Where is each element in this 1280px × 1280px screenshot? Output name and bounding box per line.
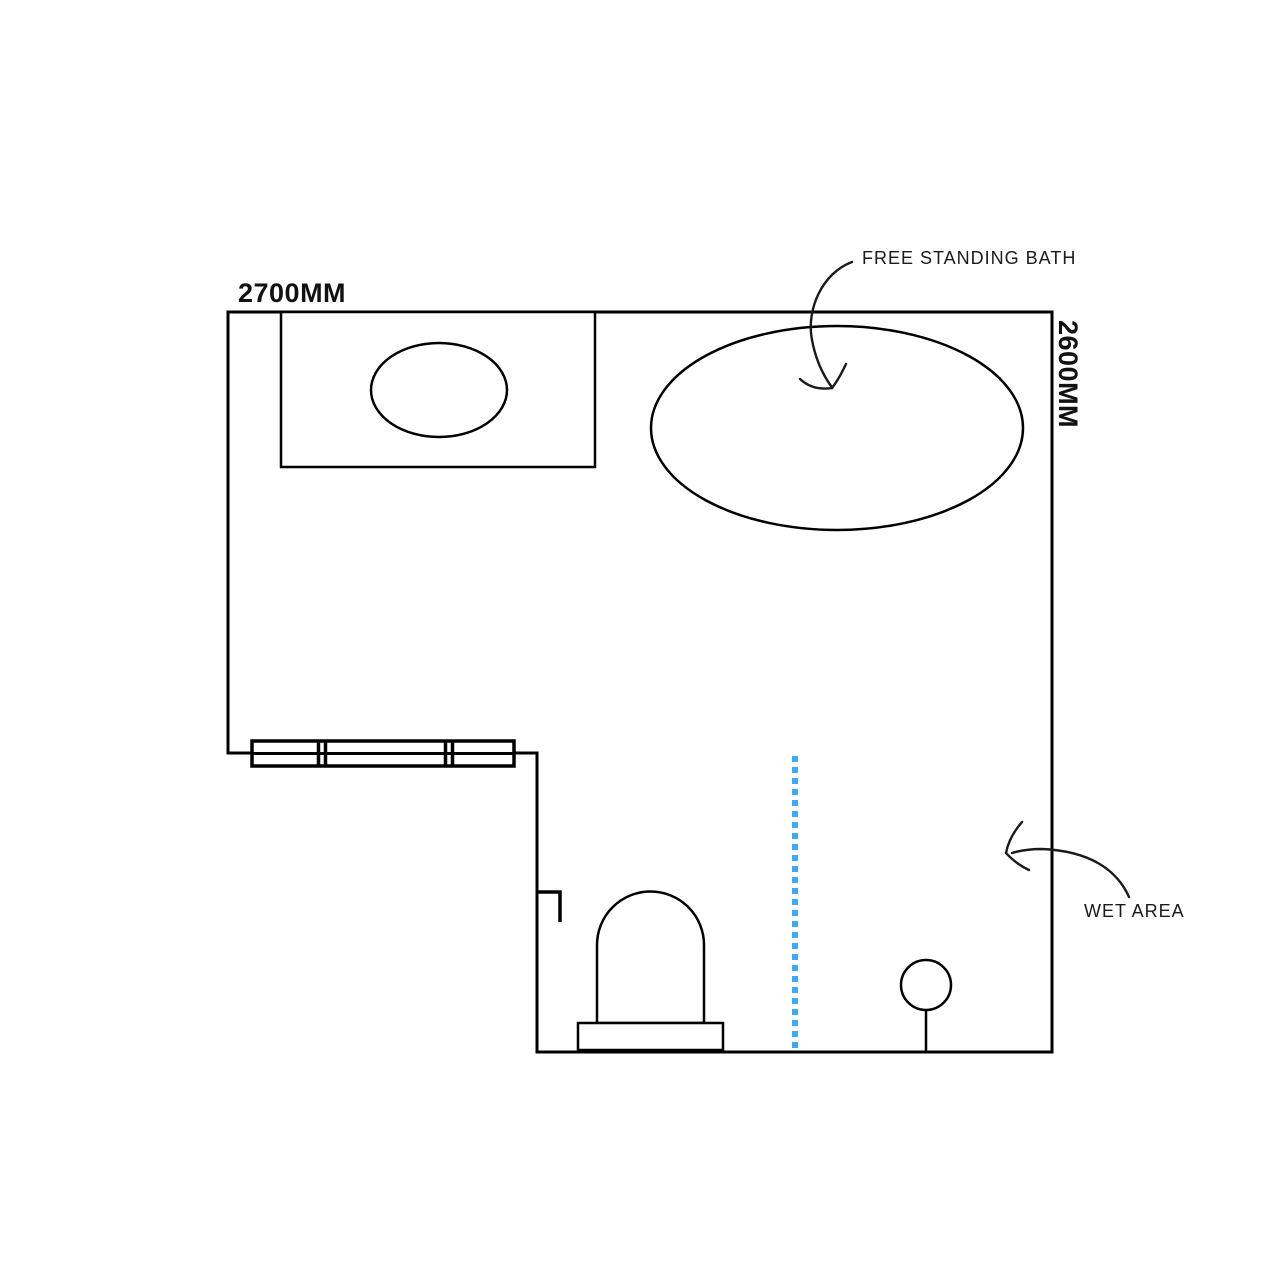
- width-dimension-label: 2700MM: [238, 280, 346, 307]
- wet-area-annotation-label: WET AREA: [1084, 902, 1185, 922]
- arrow-stem: [1012, 849, 1129, 897]
- floor-plan-drawing: [0, 0, 1280, 1280]
- floor-plan-canvas: 2700MM 2600MM FREE STANDING BATH WET ARE…: [0, 0, 1280, 1280]
- wet-area-annotation-arrow: [1006, 822, 1129, 897]
- arrow-barb: [1006, 853, 1029, 870]
- wall-return-detail: [538, 892, 560, 922]
- shower-head-icon: [901, 960, 951, 1010]
- toilet: [578, 892, 723, 1051]
- vanity-basin: [371, 343, 507, 437]
- toilet-cistern: [578, 1023, 723, 1050]
- height-dimension-label: 2600MM: [1054, 320, 1081, 428]
- bath-annotation-label: FREE STANDING BATH: [862, 249, 1076, 269]
- toilet-bowl: [597, 892, 704, 1024]
- shower-point: [901, 960, 951, 1052]
- arrow-barb: [1006, 822, 1022, 853]
- arrow-stem: [811, 262, 852, 386]
- free-standing-bath: [651, 326, 1023, 530]
- sliding-door-symbol: [252, 741, 514, 766]
- arrow-barb: [832, 364, 846, 388]
